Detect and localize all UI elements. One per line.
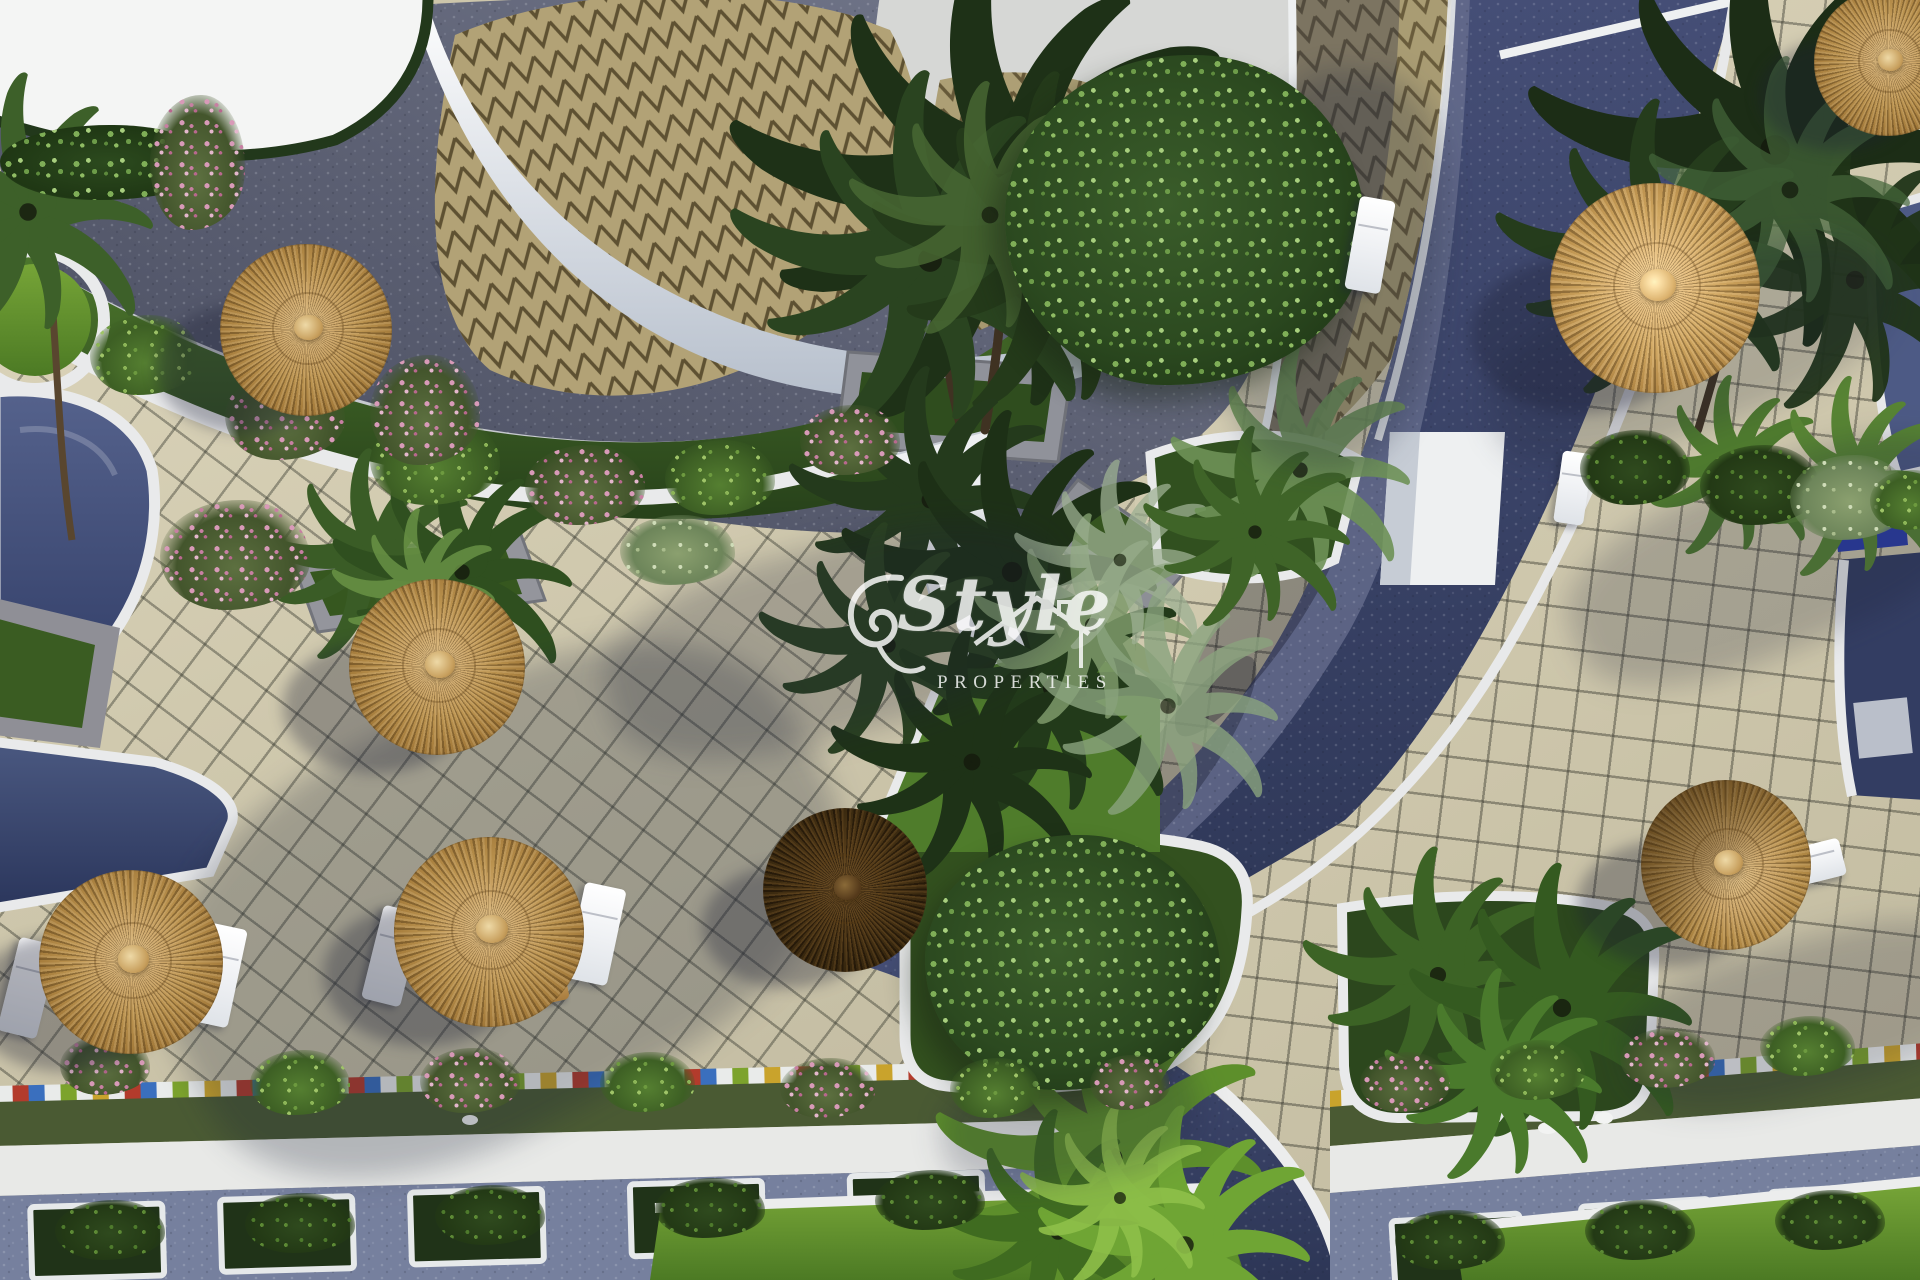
parasol-cap [1714, 850, 1743, 876]
plant-cluster [1490, 1040, 1585, 1100]
plant-cluster [950, 1058, 1040, 1118]
parasol-cap [294, 315, 323, 341]
plant-cluster [435, 1185, 545, 1245]
plant-cluster [875, 1170, 985, 1230]
flower-cluster [150, 95, 245, 230]
flower-cluster [1360, 1052, 1450, 1112]
thatch-parasol [39, 870, 223, 1054]
thatch-parasol [220, 244, 392, 416]
flower-cluster [1620, 1028, 1715, 1088]
plant-cluster [250, 1050, 350, 1115]
thatch-parasol [1550, 183, 1760, 393]
flower-cluster [800, 405, 900, 475]
parasol-cap [1640, 269, 1676, 301]
parasol-cap [476, 915, 508, 944]
plant-cluster [1585, 1200, 1695, 1260]
parasol-cap [1878, 49, 1903, 71]
plant-cluster [1580, 430, 1690, 505]
parasol-cap [425, 651, 455, 677]
flower-cluster [525, 445, 645, 525]
swimming-pools-left [0, 391, 233, 908]
flower-cluster [1090, 1055, 1170, 1110]
flower-cluster [160, 500, 310, 610]
plant-cluster [1775, 1190, 1885, 1250]
plant-cluster [620, 515, 735, 585]
tree-canopy [1005, 55, 1365, 385]
flower-cluster [420, 1048, 520, 1113]
plant-cluster [665, 440, 775, 515]
thatch-parasol [1641, 780, 1811, 950]
plant-cluster [1395, 1210, 1505, 1270]
plant-cluster [55, 1200, 165, 1260]
tree-canopy [925, 835, 1220, 1090]
parasol-cap [834, 875, 862, 900]
thatch-parasol [349, 579, 525, 755]
plant-cluster [245, 1193, 355, 1253]
parasol-cap [118, 945, 149, 973]
flower-cluster [780, 1058, 875, 1118]
thatch-parasol [394, 837, 584, 1027]
plant-cluster [655, 1178, 765, 1238]
plant-cluster [1760, 1016, 1855, 1076]
scene: Style PROPERTIES [0, 0, 1920, 1280]
flower-cluster [370, 355, 480, 465]
plant-cluster [600, 1052, 695, 1112]
thatch-parasol [763, 808, 927, 972]
